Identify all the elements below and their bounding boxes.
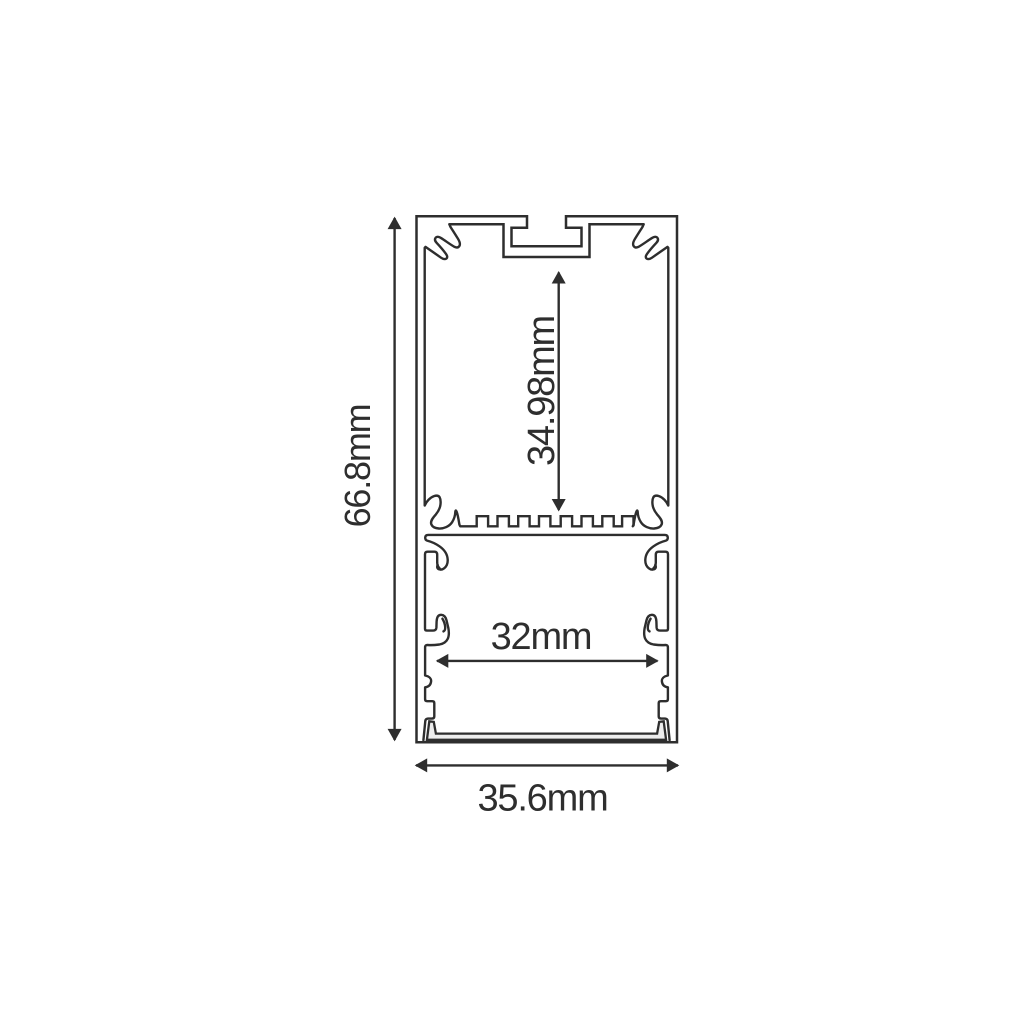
svg-text:34.98mm: 34.98mm [521,316,563,466]
svg-text:66.8mm: 66.8mm [337,405,378,528]
svg-text:35.6mm: 35.6mm [477,778,607,820]
svg-text:32mm: 32mm [491,616,592,658]
